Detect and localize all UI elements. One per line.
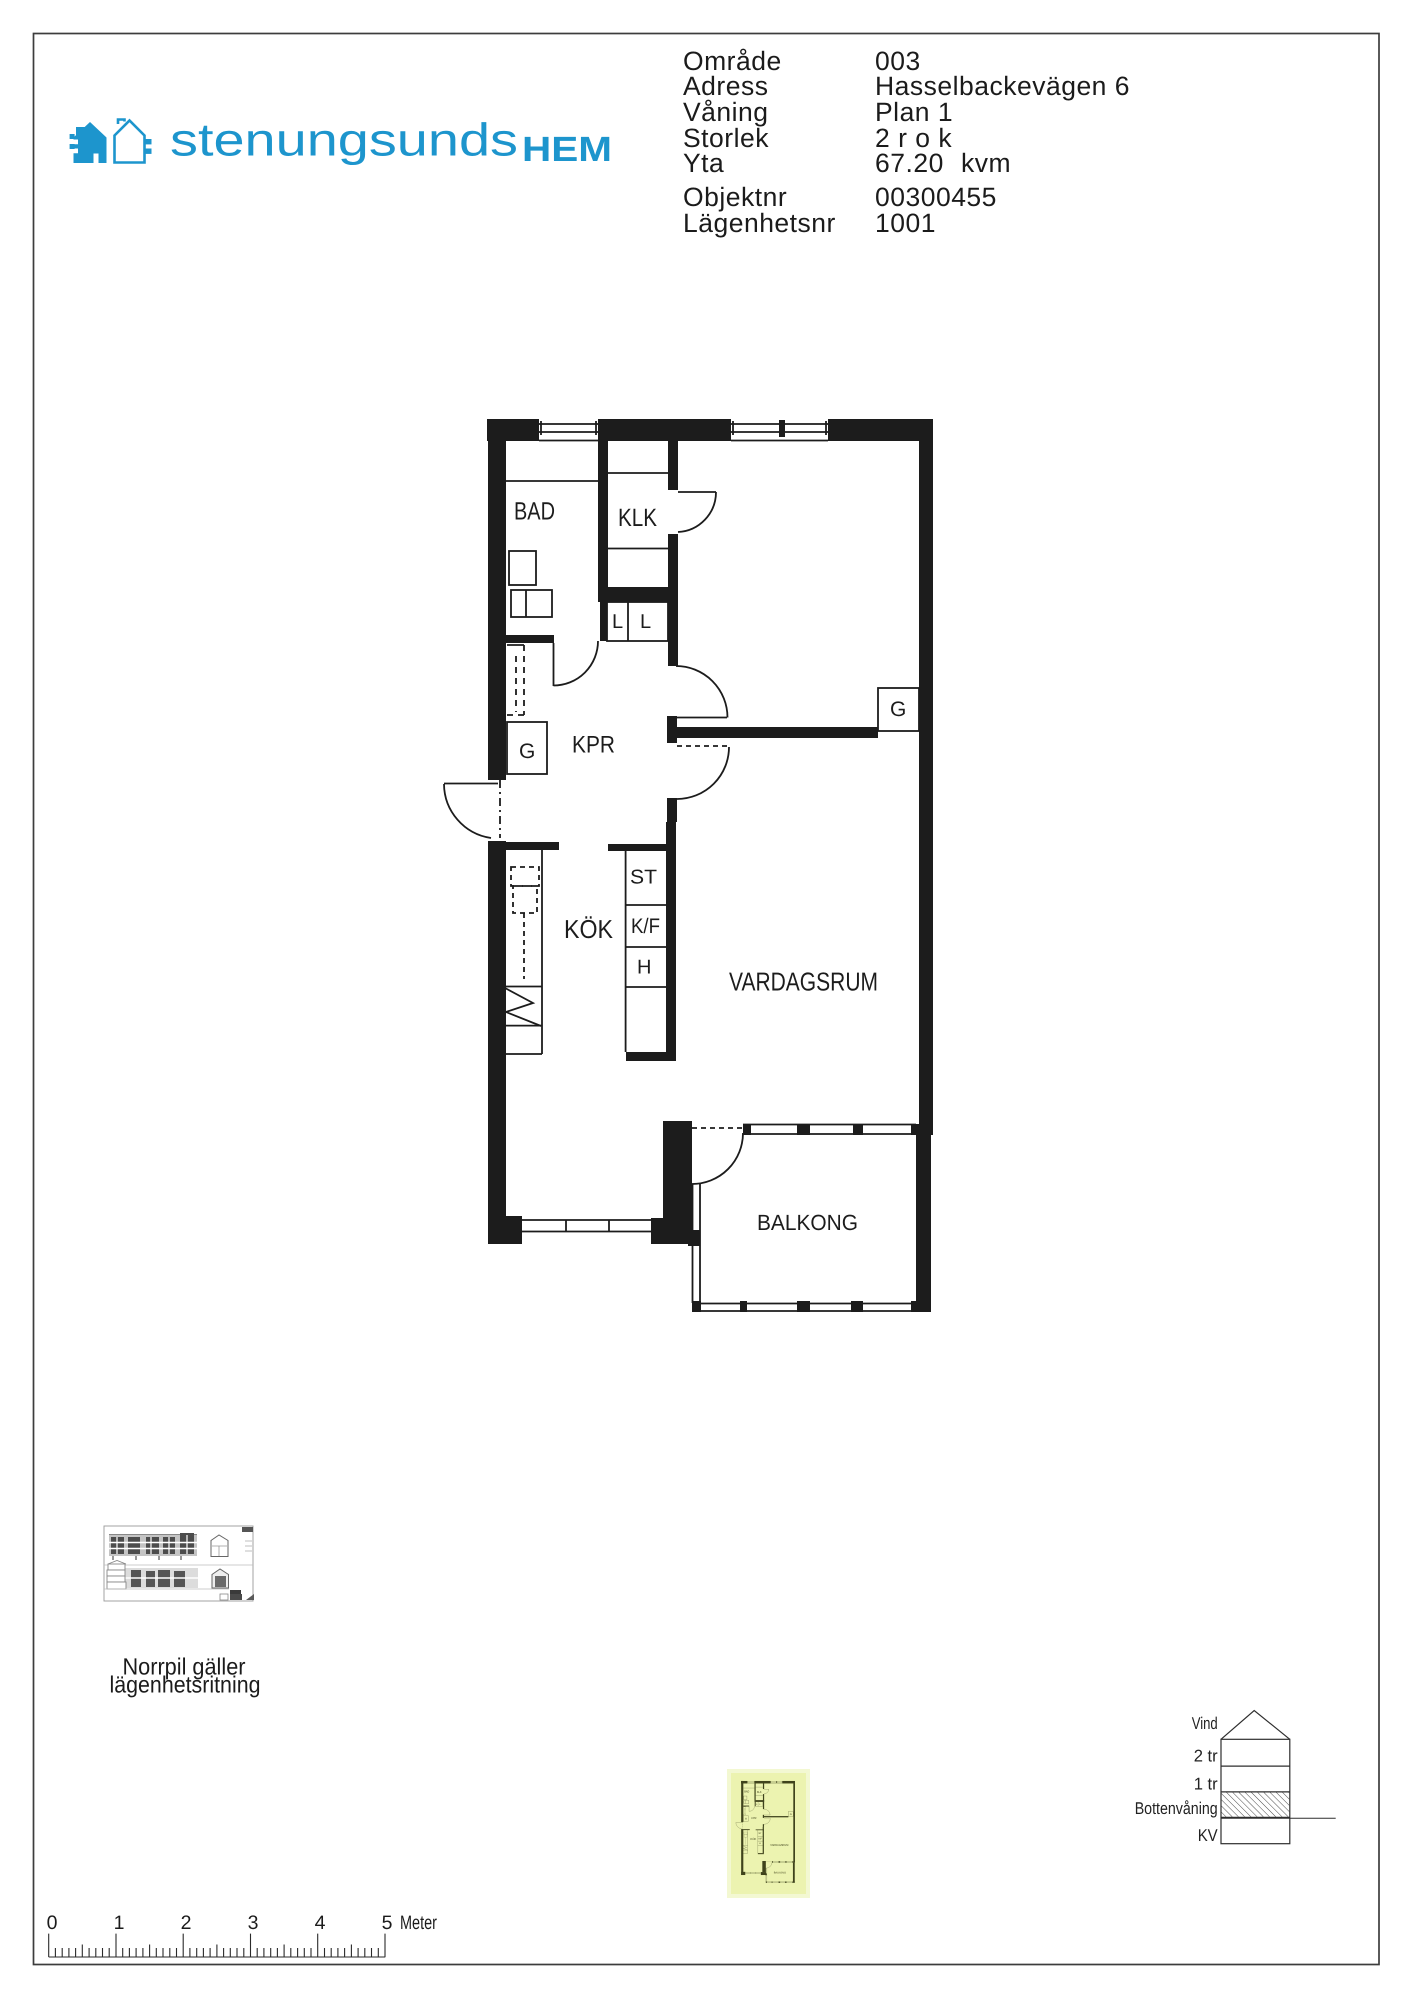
svg-text:0: 0	[47, 1912, 58, 1934]
svg-text:KV: KV	[1198, 1826, 1219, 1845]
svg-text:Yta: Yta	[683, 148, 724, 178]
svg-text:4: 4	[315, 1912, 326, 1934]
svg-text:3: 3	[248, 1912, 259, 1934]
svg-text:lägenhetsritning: lägenhetsritning	[110, 1672, 261, 1698]
svg-text:Vind: Vind	[1192, 1714, 1218, 1733]
svg-text:HEM: HEM	[522, 130, 612, 169]
svg-text:stenungsunds: stenungsunds	[170, 114, 518, 166]
svg-text:67.20: 67.20	[875, 148, 944, 178]
svg-text:Lägenhetsnr: Lägenhetsnr	[683, 208, 836, 238]
svg-text:2: 2	[181, 1912, 192, 1934]
svg-text:Bottenvåning: Bottenvåning	[1135, 1799, 1218, 1818]
svg-text:kvm: kvm	[961, 148, 1011, 178]
svg-text:1001: 1001	[875, 208, 936, 238]
svg-text:1 tr: 1 tr	[1194, 1774, 1218, 1793]
svg-text:Meter: Meter	[400, 1912, 437, 1934]
svg-text:2 tr: 2 tr	[1194, 1746, 1218, 1765]
svg-text:5: 5	[382, 1912, 393, 1934]
svg-text:1: 1	[114, 1912, 125, 1934]
